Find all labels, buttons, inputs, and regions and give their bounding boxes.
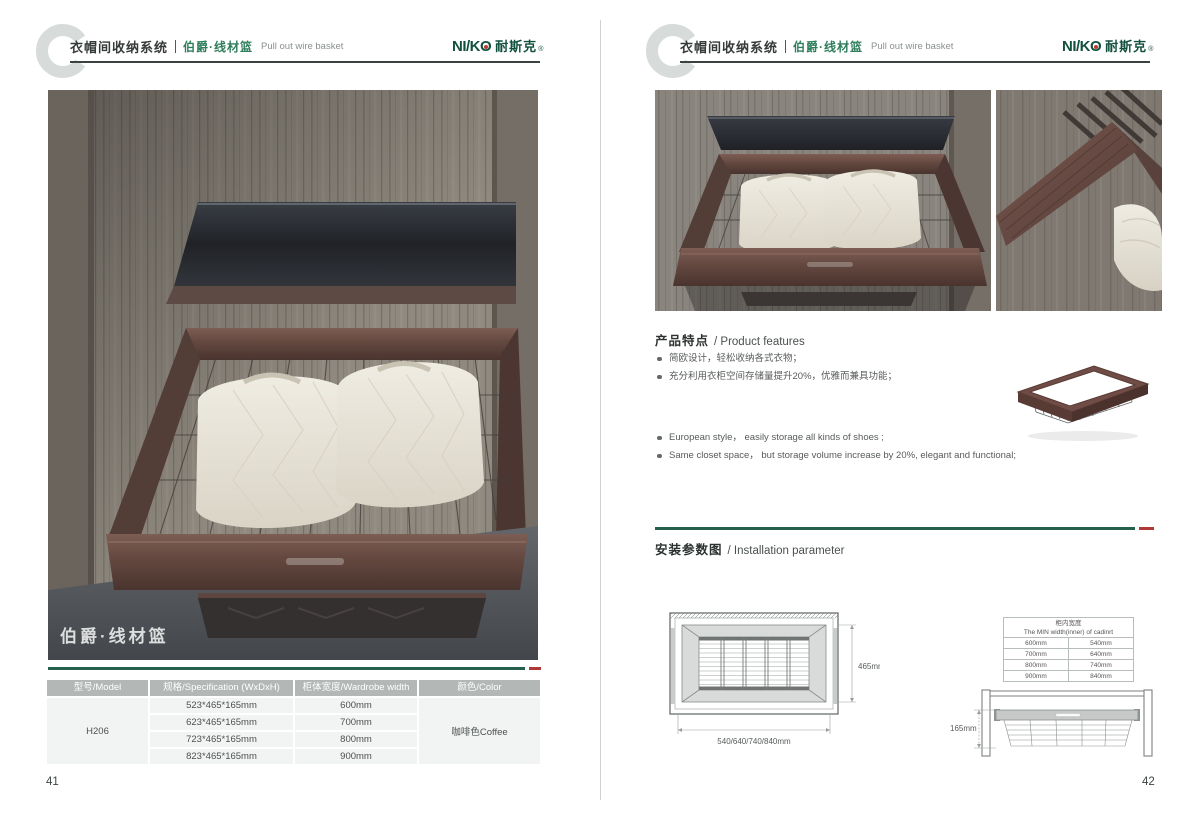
feature-bullet: Same closet space， but storage volume in… (655, 450, 1055, 462)
lower-tray (198, 593, 486, 638)
min-width-table: 柜内宽度 The MIN width(inner) of cadinrt 600… (1003, 617, 1134, 682)
photo-caption: 伯爵·线材篮 (60, 622, 169, 647)
page-header: 衣帽间收纳系统 伯爵·线材篮 Pull out wire basket (680, 37, 953, 56)
header-underline (680, 61, 1150, 63)
height-dimension-label: 165mm (950, 724, 977, 733)
width-row-value: 900mm (295, 749, 417, 764)
cabinet-top-hatch (671, 614, 838, 619)
page-divider (600, 20, 601, 800)
brand-logo: NI/KO 耐斯克 ® (1062, 36, 1153, 55)
feature-bullet: 简欧设计，轻松收纳各式衣物； (655, 353, 1005, 365)
basket-brand-mark (807, 262, 853, 267)
spec-row-value: 623*465*165mm (150, 715, 293, 730)
header-system-title: 衣帽间收纳系统 (70, 37, 168, 56)
page-header: 衣帽间收纳系统 伯爵·线材篮 Pull out wire basket (70, 37, 343, 56)
detail-photo-basket (655, 90, 991, 311)
section-divider-red (529, 667, 541, 670)
basket-front-rail (106, 534, 528, 590)
header-divider-bar (175, 40, 176, 53)
basket-front-rail (673, 248, 987, 286)
table-row: 900mm 840mm (1004, 671, 1134, 682)
spec-row-value: 823*465*165mm (150, 749, 293, 764)
main-product-photo (48, 90, 538, 660)
spec-table-header-model: 型号/Model (47, 680, 148, 696)
basket-frame-topview (682, 625, 826, 702)
features-list-en: European style， easily storage all kinds… (655, 432, 1055, 468)
brand-logo: NI/KO 耐斯克 ® (452, 36, 543, 55)
page-number-right: 42 (1142, 776, 1155, 788)
spec-table-header-spec: 规格/Specification (WxDxH) (150, 680, 293, 696)
glass-shelf (707, 116, 955, 150)
installation-title: 安装参数图/ Installation parameter (655, 539, 845, 559)
feature-bullet: 充分利用衣柜空间存储量提升20%，优雅而兼具功能； (655, 371, 1005, 383)
header-system-title: 衣帽间收纳系统 (680, 37, 778, 56)
header-product-subtitle: Pull out wire basket (871, 41, 953, 52)
section-divider-red (1139, 527, 1154, 530)
header-product-title: 伯爵·线材篮 (183, 38, 253, 55)
table-row: 600mm 540mm (1004, 638, 1134, 649)
spec-row-value: 523*465*165mm (150, 698, 293, 713)
header-product-subtitle: Pull out wire basket (261, 41, 343, 52)
width-row-value: 600mm (295, 698, 417, 713)
spec-model-value: H206 (47, 698, 148, 764)
spec-table-header-width: 柜体宽度/Wardrobe width (295, 680, 417, 696)
dimension-lines (974, 710, 996, 748)
side-view-diagram: 165mm (948, 686, 1163, 761)
product-render (1008, 350, 1158, 445)
lower-tray (741, 292, 917, 306)
page-number-left: 41 (46, 776, 59, 788)
top-view-diagram: 465mm 540/640/740/840mm (655, 598, 880, 750)
folded-sweaters (739, 170, 921, 253)
features-title: 产品特点/ Product features (655, 330, 805, 350)
depth-dimension-label: 465mm (858, 662, 880, 671)
section-divider-green (48, 667, 525, 670)
glass-shelf (166, 202, 516, 304)
min-width-table-title-cn: 柜内宽度 (1004, 619, 1133, 628)
feature-bullet: European style， easily storage all kinds… (655, 432, 1055, 444)
folded-sweaters (196, 362, 484, 528)
closeup-photo-frame-corner (996, 90, 1162, 311)
spec-table: 型号/Model 规格/Specification (WxDxH) 柜体宽度/W… (47, 680, 540, 764)
basket-brand-mark (1056, 714, 1080, 717)
catalog-spread: 衣帽间收纳系统 伯爵·线材篮 Pull out wire basket NI/K… (0, 0, 1200, 820)
spec-table-header-color: 颜色/Color (419, 680, 540, 696)
wardrobe-left-wall (48, 90, 88, 660)
header-divider-bar (785, 40, 786, 53)
section-divider-green (655, 527, 1135, 530)
table-row: 700mm 640mm (1004, 649, 1134, 660)
width-row-value: 700mm (295, 715, 417, 730)
basket-brand-mark (286, 558, 344, 565)
table-row: 800mm 740mm (1004, 660, 1134, 671)
header-product-title: 伯爵·线材篮 (793, 38, 863, 55)
spec-row-value: 723*465*165mm (150, 732, 293, 747)
features-list-cn: 简欧设计，轻松收纳各式衣物； 充分利用衣柜空间存储量提升20%，优雅而兼具功能； (655, 353, 1005, 389)
basket-sideview (994, 709, 1140, 746)
width-dimension-label: 540/640/740/840mm (717, 737, 791, 746)
width-row-value: 800mm (295, 732, 417, 747)
header-underline (70, 61, 540, 63)
spec-color-value: 咖啡色Coffee (419, 698, 540, 764)
min-width-table-title-en: The MIN width(inner) of cadinrt (1004, 628, 1133, 637)
